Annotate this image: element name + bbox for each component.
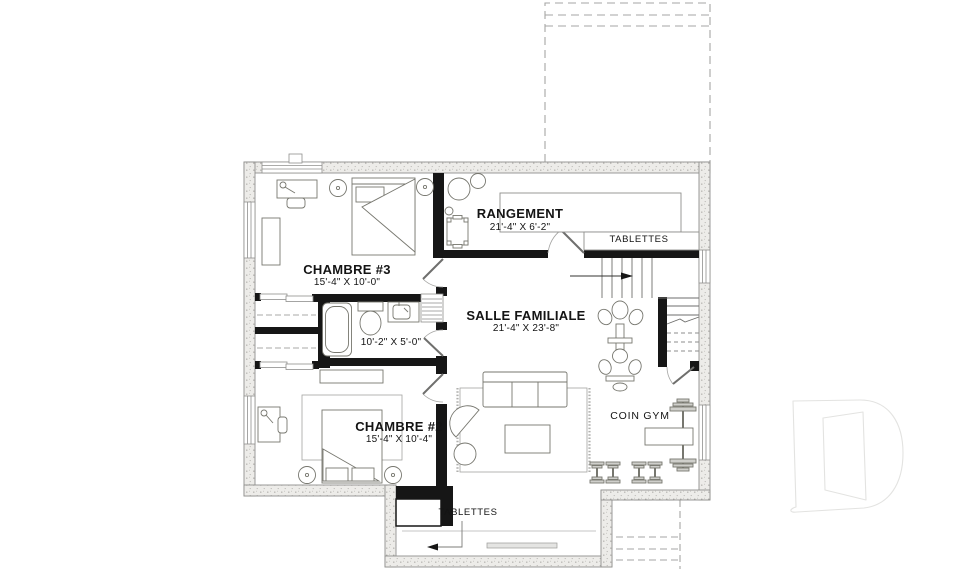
dresser-tv-icon [320, 370, 383, 383]
floorplan-drawing [0, 0, 960, 569]
door-leaf-chambre3 [423, 259, 443, 279]
room-label-salle-familiale: SALLE FAMILIALE [466, 309, 585, 323]
label-tablettes-rangement: TABLETTES [609, 235, 668, 245]
window-right-stairs-icon [699, 250, 710, 283]
side-table-icon [454, 443, 476, 465]
door-leaf-rangement [561, 230, 584, 253]
window-left-chambre3-icon [244, 202, 255, 258]
room-dims-rangement: 21'-4" X 6'-2" [490, 222, 550, 233]
label-tablettes-alcove: TABLETTES [438, 508, 497, 518]
shelf-board [487, 543, 557, 548]
deck-dashed-top [545, 3, 710, 162]
window-top-chambre3-icon [262, 162, 322, 173]
desk-icon [258, 407, 287, 442]
room-dims-chambre2: 15'-4" X 10'-4" [366, 434, 432, 445]
water-heater-icon [448, 178, 470, 200]
door-leaf-chambre2 [423, 374, 443, 394]
room-dims-chambre3: 15'-4" X 10'-0" [314, 277, 380, 288]
window-left-chambre2-icon [244, 396, 255, 444]
pillow-icon [326, 468, 348, 481]
door-leaf-gym [673, 367, 694, 384]
dresser-icon [262, 218, 280, 265]
door-arc-bain [424, 330, 443, 338]
deck-dashed-bottom [605, 500, 680, 569]
linen-shelves-icon [421, 294, 443, 322]
drain-icon [445, 207, 453, 215]
dumbbells-icon [590, 462, 662, 483]
stair-direction-arrow [570, 273, 633, 280]
bathtub-icon [323, 303, 352, 356]
chambre3-furniture [262, 178, 434, 265]
coffee-table-icon [505, 425, 550, 453]
armchair-icon [450, 406, 479, 437]
leader-arrowhead [427, 544, 438, 551]
floorplan-page: RANGEMENT 21'-4" X 6'-2" TABLETTES CHAMB… [0, 0, 960, 569]
watermark-d-logo [791, 400, 903, 512]
door-arc-rangement [548, 230, 561, 253]
gym-equipment [590, 301, 696, 483]
door-arc-chambre2 [423, 394, 443, 402]
room-label-rangement: RANGEMENT [477, 207, 563, 221]
window-right-gym-icon [699, 405, 710, 460]
toilet-icon [358, 302, 383, 335]
room-label-chambre2: CHAMBRE #2 [355, 420, 443, 434]
desk-icon [277, 180, 317, 208]
wall-post-marker [289, 154, 302, 163]
room-label-chambre3: CHAMBRE #3 [303, 263, 391, 277]
door-arc-chambre3 [423, 279, 443, 287]
door-leaf-bain [424, 338, 443, 356]
door-arc-gym [667, 367, 673, 384]
room-label-coin-gym: COIN GYM [610, 411, 669, 423]
gym-machine-icon [595, 301, 645, 391]
pillow-icon [352, 468, 374, 481]
salle-familiale-furniture [450, 372, 590, 472]
sofa-icon [483, 372, 567, 407]
room-dims-salle-de-bain: 10'-2" X 5'-0" [361, 337, 421, 348]
cold-room-box [396, 499, 441, 526]
room-dims-salle-familiale: 21'-4" X 23'-8" [493, 323, 559, 334]
bed-icon [352, 178, 415, 255]
sink-vanity-icon [388, 302, 419, 322]
